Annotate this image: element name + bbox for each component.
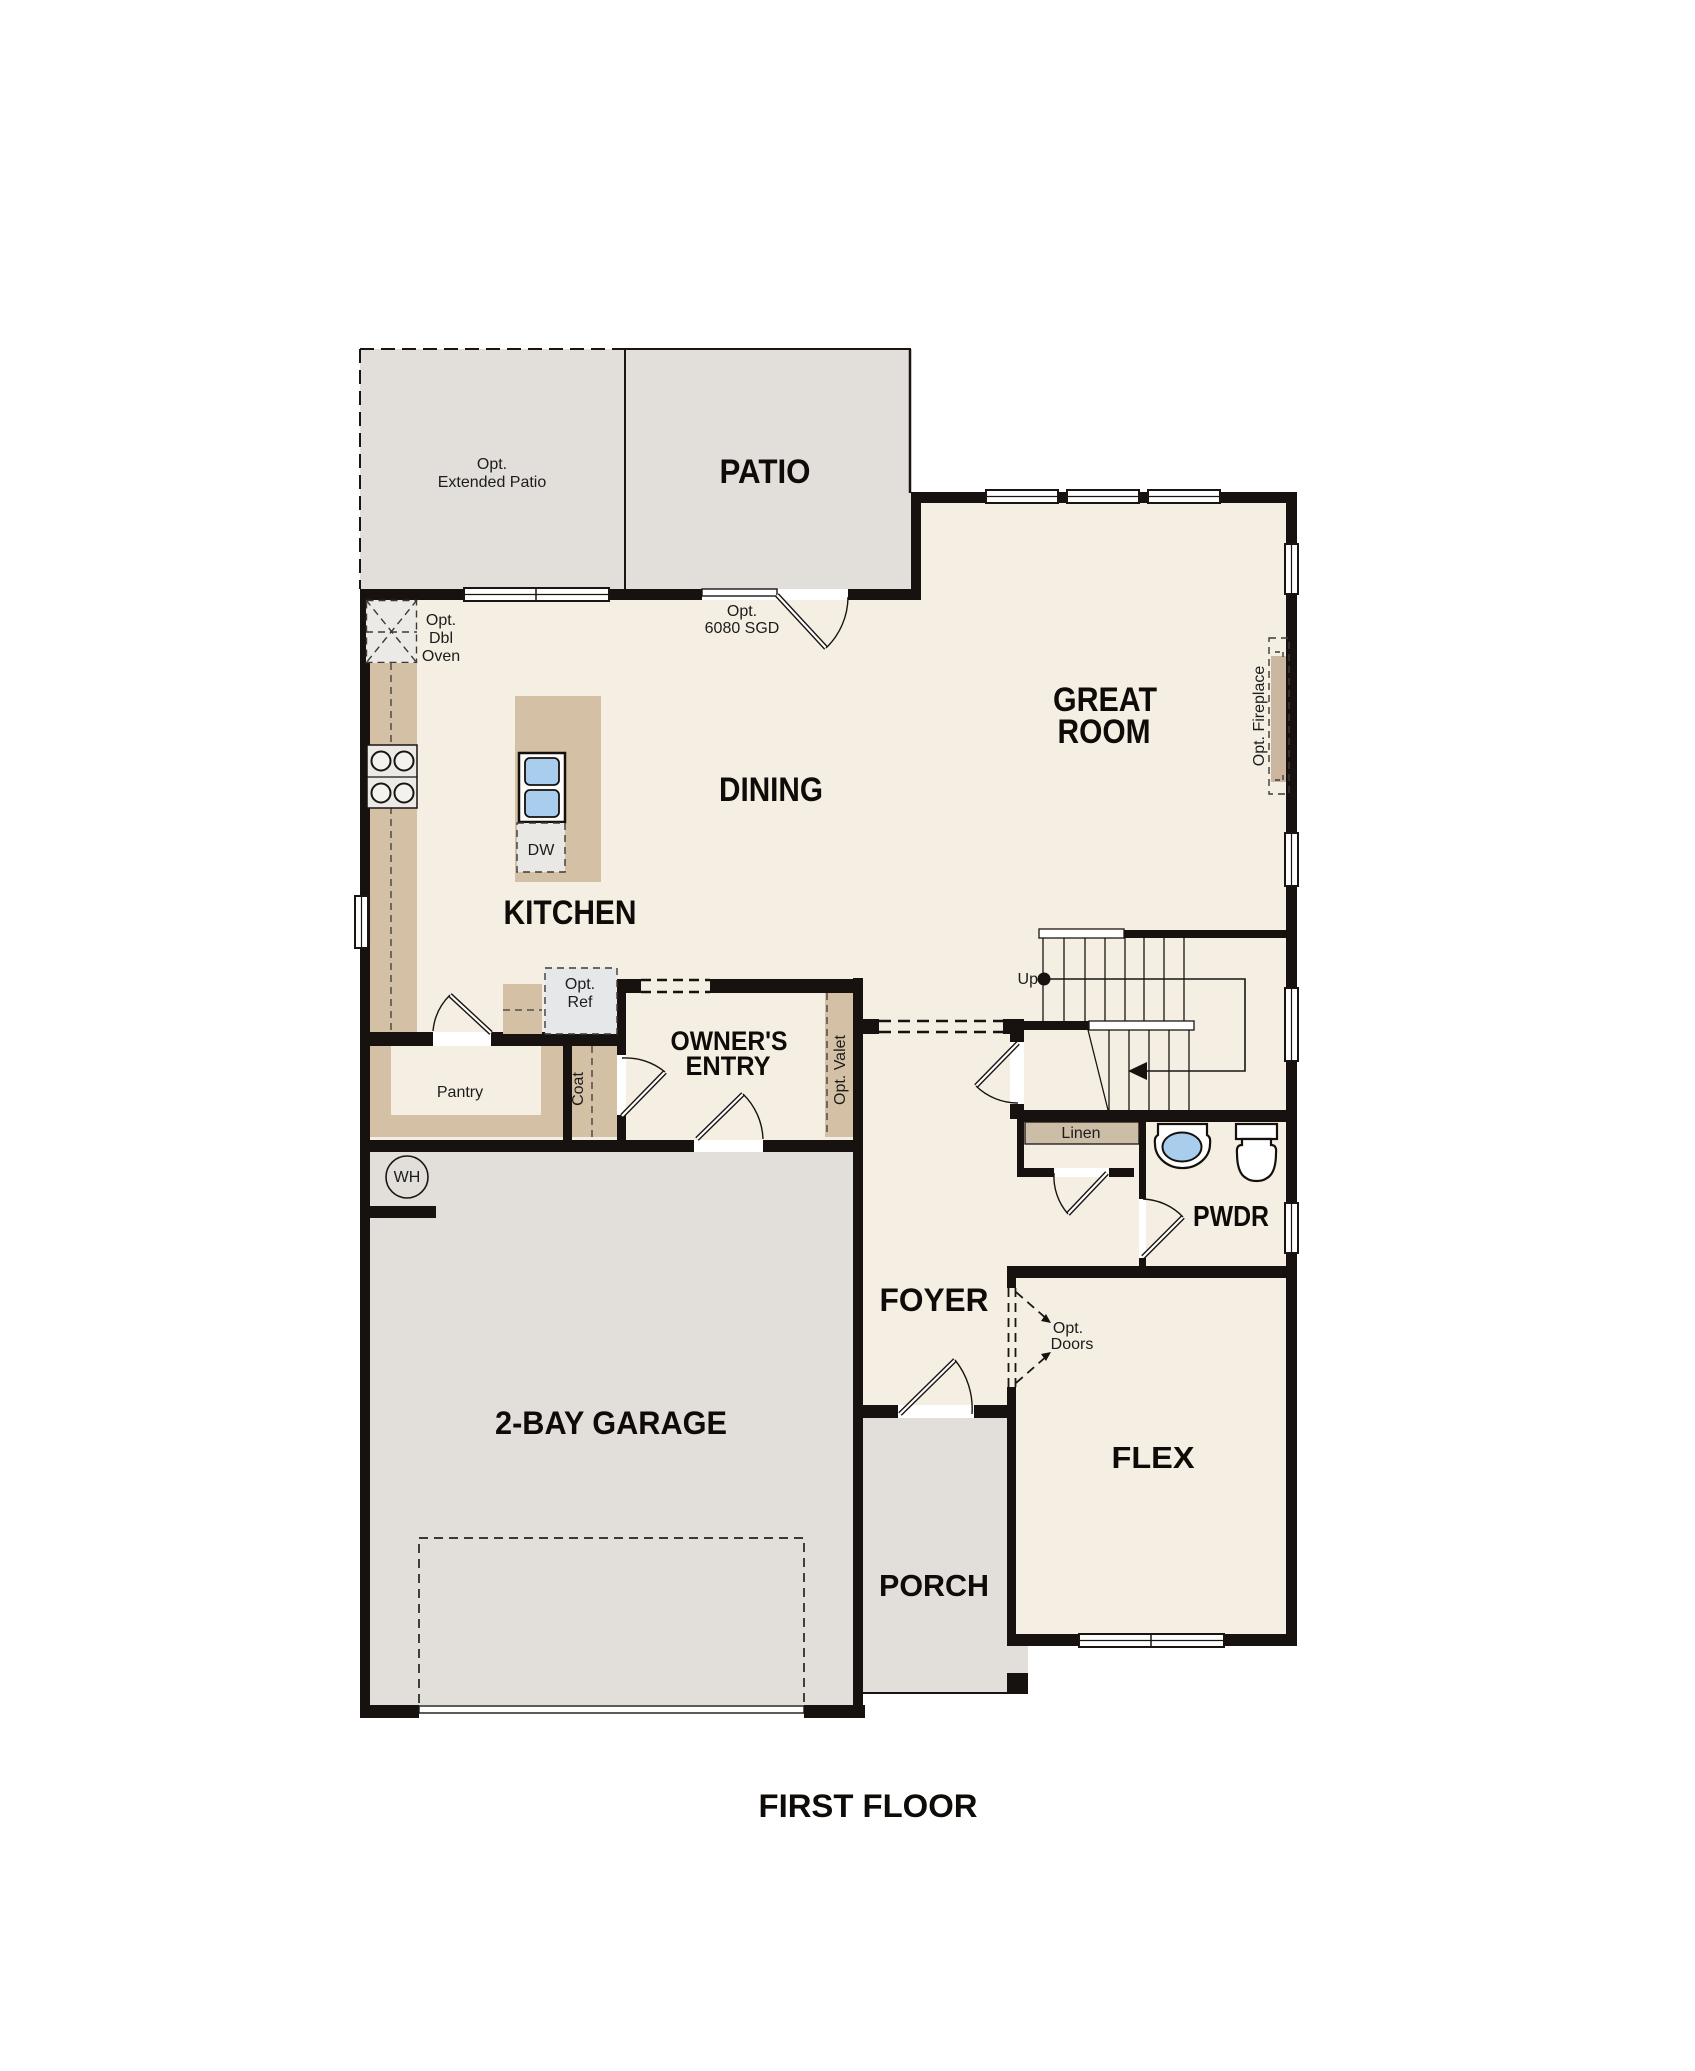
svg-text:Extended Patio: Extended Patio bbox=[438, 474, 547, 491]
svg-text:FLEX: FLEX bbox=[1112, 1440, 1195, 1475]
svg-text:DINING: DINING bbox=[719, 771, 823, 809]
svg-text:FOYER: FOYER bbox=[880, 1282, 989, 1318]
svg-text:Dbl: Dbl bbox=[429, 630, 453, 647]
svg-text:ENTRY: ENTRY bbox=[686, 1051, 771, 1081]
svg-text:KITCHEN: KITCHEN bbox=[504, 894, 637, 932]
svg-text:Opt. Valet: Opt. Valet bbox=[832, 1034, 849, 1105]
svg-text:FIRST FLOOR: FIRST FLOOR bbox=[759, 1788, 978, 1824]
svg-text:Doors: Doors bbox=[1051, 1336, 1094, 1353]
svg-text:PWDR: PWDR bbox=[1193, 1201, 1269, 1233]
svg-text:DW: DW bbox=[528, 842, 556, 859]
svg-text:Opt.: Opt. bbox=[477, 456, 507, 473]
svg-text:Up: Up bbox=[1018, 971, 1039, 988]
svg-text:Pantry: Pantry bbox=[437, 1084, 483, 1101]
svg-text:Opt.: Opt. bbox=[1053, 1320, 1083, 1337]
svg-text:2-BAY GARAGE: 2-BAY GARAGE bbox=[495, 1405, 727, 1441]
svg-text:PORCH: PORCH bbox=[879, 1568, 989, 1603]
svg-text:Opt. Fireplace: Opt. Fireplace bbox=[1251, 666, 1268, 767]
svg-text:Oven: Oven bbox=[422, 648, 460, 665]
svg-text:Coat: Coat bbox=[570, 1072, 587, 1106]
svg-text:6080 SGD: 6080 SGD bbox=[705, 620, 780, 637]
svg-text:Opt.: Opt. bbox=[727, 603, 757, 620]
svg-text:Opt.: Opt. bbox=[565, 976, 595, 993]
svg-text:Ref: Ref bbox=[568, 994, 593, 1011]
svg-text:WH: WH bbox=[394, 1169, 421, 1186]
svg-text:Opt.: Opt. bbox=[426, 612, 456, 629]
svg-text:PATIO: PATIO bbox=[720, 453, 811, 491]
svg-text:ROOM: ROOM bbox=[1058, 713, 1151, 751]
svg-text:Linen: Linen bbox=[1061, 1125, 1100, 1142]
